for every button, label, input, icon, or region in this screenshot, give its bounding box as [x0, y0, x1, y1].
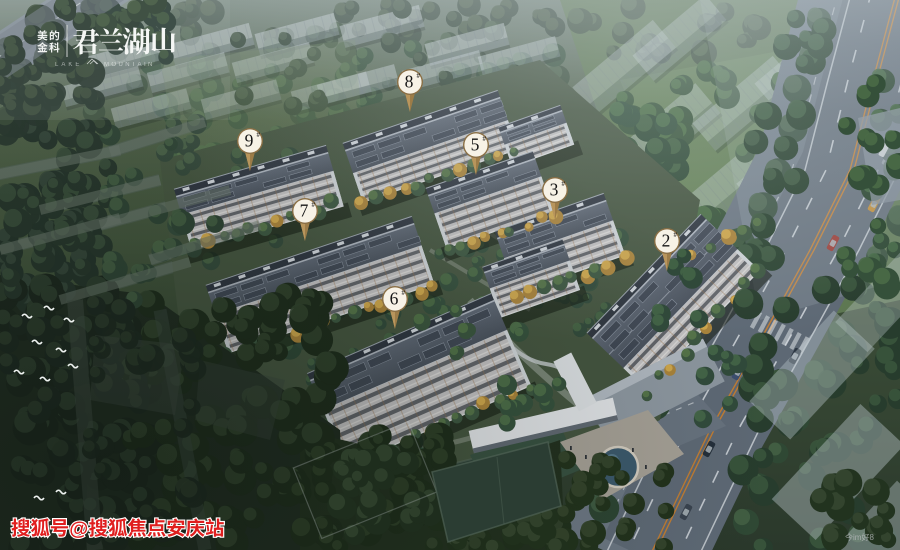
svg-text:#: # [561, 179, 565, 188]
svg-text:8: 8 [405, 72, 414, 92]
svg-text:#: # [401, 288, 405, 297]
svg-text:#: # [673, 230, 677, 239]
svg-text:5: 5 [471, 135, 480, 155]
svg-text:#: # [416, 71, 420, 80]
svg-text:7: 7 [300, 201, 309, 221]
svg-text:6: 6 [390, 289, 399, 309]
svg-text:今im好8: 今im好8 [845, 532, 874, 542]
svg-text:#: # [482, 134, 486, 143]
svg-text:3: 3 [550, 180, 559, 200]
svg-text:@: @ [69, 518, 88, 540]
svg-text:#: # [256, 130, 260, 139]
svg-text:2: 2 [662, 231, 671, 251]
svg-text:MOUNTAIN: MOUNTAIN [104, 62, 155, 68]
svg-text:9: 9 [245, 131, 254, 151]
svg-text:#: # [311, 200, 315, 209]
svg-text:LAKE: LAKE [55, 62, 82, 68]
